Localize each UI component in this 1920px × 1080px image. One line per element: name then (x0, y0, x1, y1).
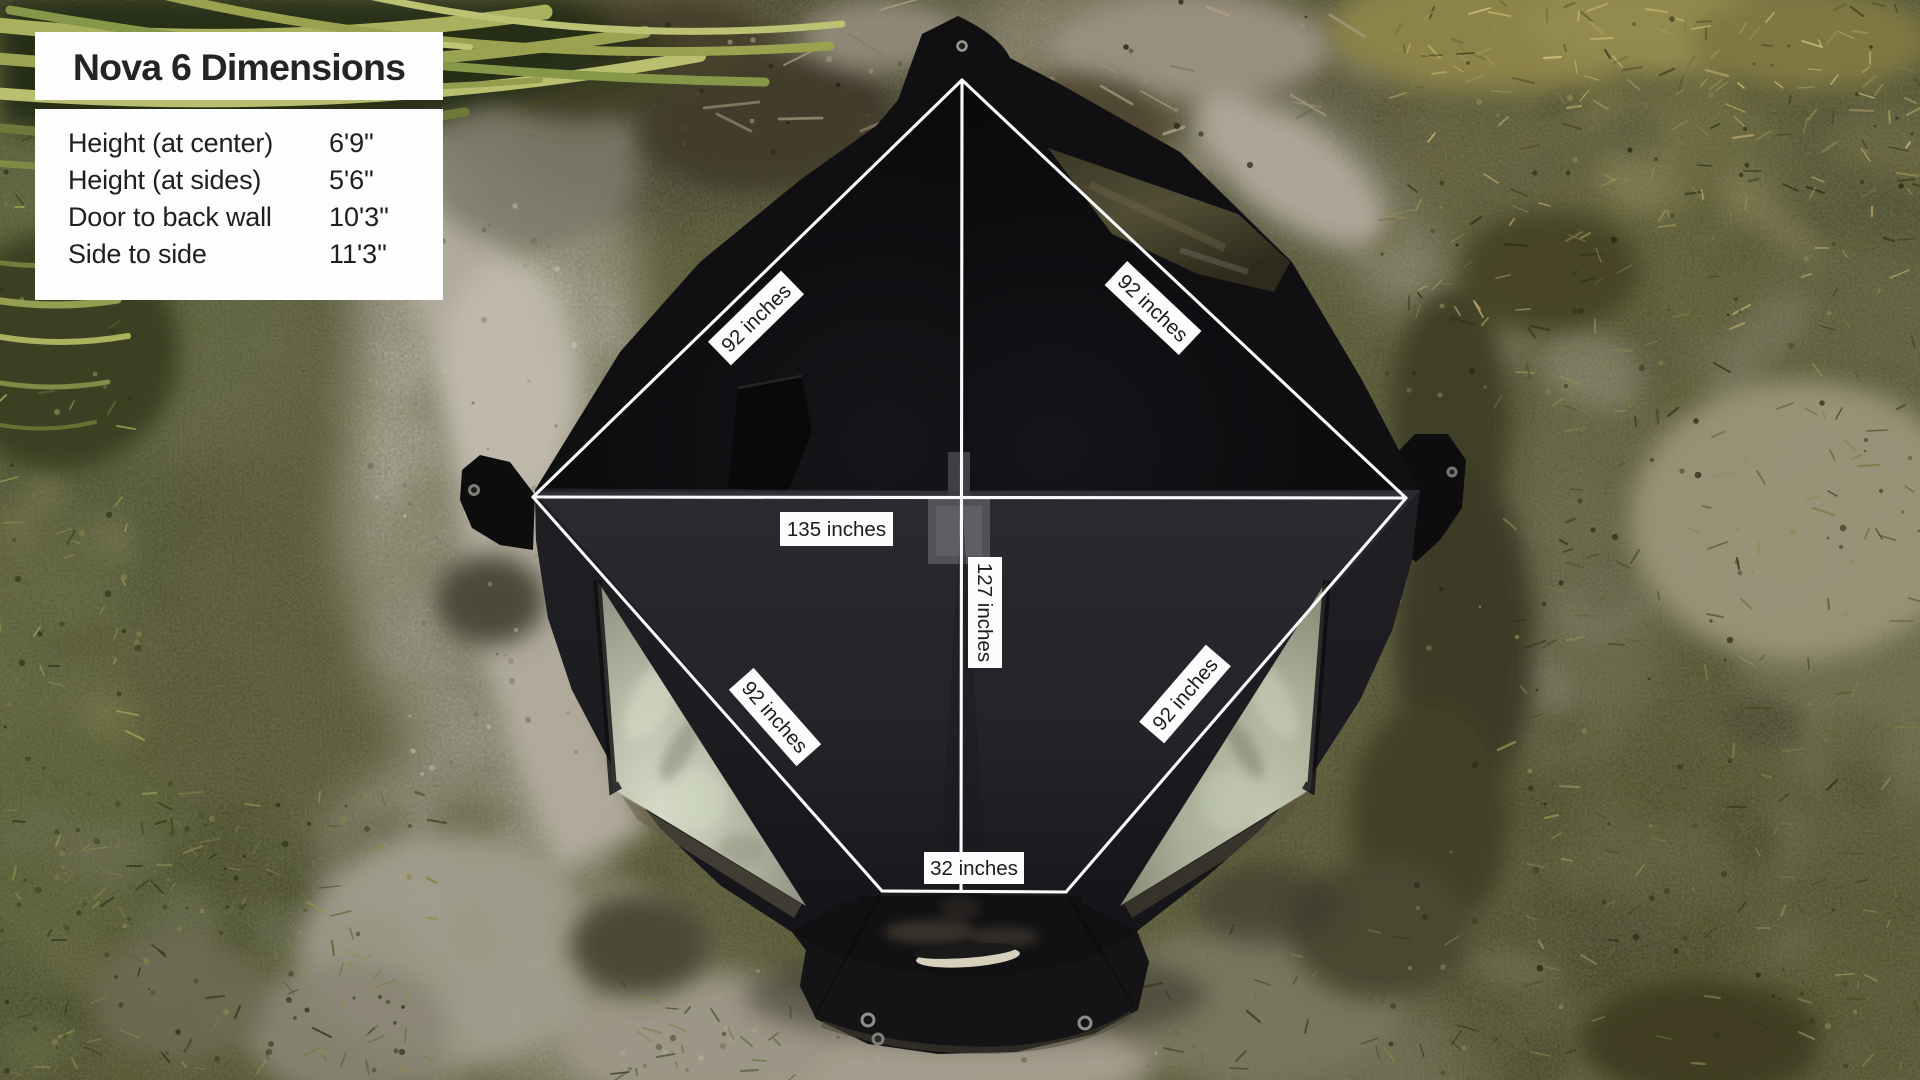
svg-text:127 inches: 127 inches (973, 563, 996, 662)
svg-text:Height (at center): Height (at center) (68, 128, 273, 158)
svg-text:10'3": 10'3" (329, 202, 389, 232)
svg-text:Height (at sides): Height (at sides) (68, 165, 261, 195)
svg-text:Door to back wall: Door to back wall (68, 202, 272, 232)
svg-text:Nova 6 Dimensions: Nova 6 Dimensions (73, 46, 405, 88)
svg-text:32 inches: 32 inches (930, 857, 1018, 880)
svg-text:6'9": 6'9" (329, 128, 374, 158)
svg-text:11'3": 11'3" (329, 239, 387, 269)
svg-text:Side to side: Side to side (68, 239, 207, 269)
svg-text:5'6": 5'6" (329, 165, 374, 195)
svg-text:135 inches: 135 inches (787, 518, 886, 541)
